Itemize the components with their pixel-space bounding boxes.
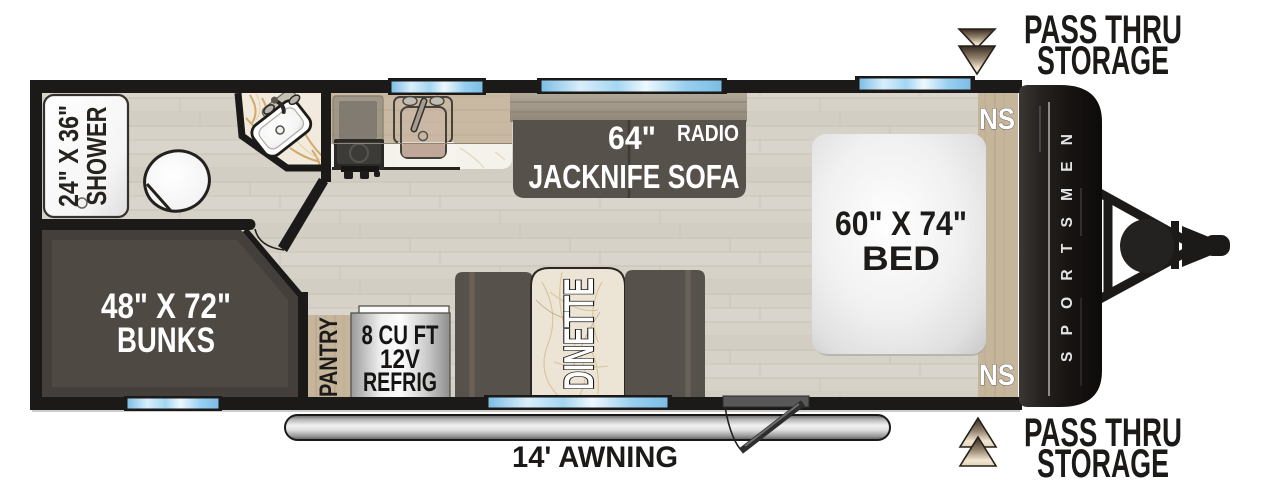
svg-text:BED: BED	[862, 240, 940, 278]
svg-text:REFRIG: REFRIG	[363, 367, 437, 397]
svg-text:RADIO: RADIO	[677, 120, 739, 146]
svg-text:64": 64"	[608, 120, 656, 156]
svg-text:24" X 36": 24" X 36"	[53, 105, 84, 207]
svg-text:SPORTSMEN: SPORTSMEN	[1059, 134, 1076, 362]
svg-text:NS: NS	[979, 103, 1015, 136]
svg-text:STORAGE: STORAGE	[1037, 39, 1169, 83]
svg-text:14' AWNING: 14' AWNING	[512, 441, 678, 474]
svg-text:DINETTE: DINETTE	[555, 278, 602, 390]
svg-text:60" X 74": 60" X 74"	[835, 205, 967, 243]
svg-text:PANTRY: PANTRY	[315, 317, 343, 397]
svg-text:STORAGE: STORAGE	[1037, 442, 1169, 486]
svg-text:SHOWER: SHOWER	[81, 107, 112, 206]
svg-text:BUNKS: BUNKS	[117, 321, 215, 360]
svg-text:JACKNIFE SOFA: JACKNIFE SOFA	[529, 158, 740, 195]
svg-text:NS: NS	[979, 359, 1015, 392]
